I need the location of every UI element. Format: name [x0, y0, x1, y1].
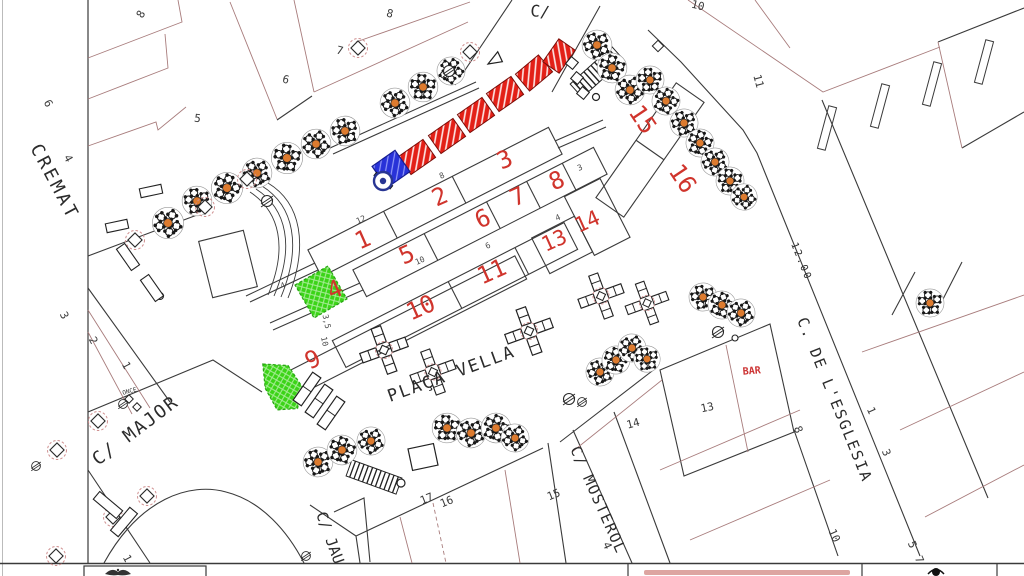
red-stall: [486, 76, 523, 111]
parcel-number: 15: [545, 486, 562, 503]
dimension-label: 10: [319, 336, 330, 347]
parcel-number: 4: [61, 152, 76, 164]
wheel-icon: [373, 172, 393, 190]
dimension-label: 12: [355, 214, 368, 226]
cross-tables-icon: [572, 267, 630, 325]
dimension-label: 3,5: [321, 313, 333, 329]
street-label-major: C/ MAJOR: [88, 391, 183, 470]
street-furniture: [31, 39, 993, 566]
parcel-number: 13: [699, 400, 715, 415]
footer-strip: [84, 564, 997, 576]
parcel-number: 8: [385, 6, 395, 20]
cross-tables-icon: [619, 275, 674, 330]
plaza-label: PLAÇA VELLA: [385, 342, 518, 407]
parking-stall: [974, 40, 993, 85]
tree-icon: [126, 231, 145, 250]
manhole-icon: [301, 552, 311, 561]
zone-number: 3: [492, 144, 517, 175]
parcel-number: 10: [690, 0, 706, 14]
bar-label: BAR: [742, 365, 762, 378]
parking-stall: [922, 62, 941, 107]
dimension-label: 8: [438, 171, 446, 181]
red-stalls: [398, 39, 575, 175]
tree-icon: [461, 43, 480, 62]
dimension-label: 3: [576, 163, 584, 173]
stamp-box: [84, 566, 206, 576]
street-label-esglesia: C. DE L'ESGLESIA: [793, 315, 876, 485]
parking-stall: [870, 84, 889, 129]
parcel-number: 17: [418, 490, 435, 507]
planter: [140, 274, 163, 301]
site-plan-canvas: 1 2 3 4 5 6 7 8 9 10 11 13 14 15 16 8 6 …: [0, 0, 1024, 576]
tree-icon: [89, 412, 108, 431]
tree-icon: [349, 39, 368, 58]
street-width-dimension: 12.00: [788, 241, 813, 282]
street-label-cremat: CREMAT: [26, 140, 84, 223]
parcel-number: 11: [750, 73, 766, 89]
title-text-blur: [644, 570, 850, 575]
zone-number: 9: [300, 344, 325, 375]
table-cluster-icon: [150, 205, 186, 241]
manhole-icon: [577, 398, 587, 407]
manhole-icon: [31, 462, 41, 471]
table-cluster-icon: [910, 283, 950, 323]
red-stall: [457, 97, 494, 132]
manhole-icon: [712, 327, 724, 339]
manhole-icon: [563, 394, 575, 406]
dimension-label: 6: [484, 241, 492, 251]
cross-tables-icon: [353, 319, 415, 381]
planter: [105, 219, 128, 232]
table-cluster-icon: [354, 424, 388, 458]
dimension-label: 10: [414, 255, 427, 267]
tree-icon: [47, 547, 66, 566]
parcel-number: 8: [134, 8, 149, 20]
parcel-number: 6: [281, 72, 291, 86]
parcel-number: 14: [625, 416, 642, 432]
street-label-top: C/: [530, 1, 551, 22]
parcel-number: 10: [826, 527, 843, 544]
kiosk-building: [199, 230, 258, 297]
zone-number: 16: [663, 159, 702, 199]
stairs-bottom: [346, 460, 402, 494]
parcel-number: 7: [335, 43, 345, 57]
tree-icon: [48, 441, 67, 460]
parcel-number: 1: [864, 405, 879, 416]
zone-number: 6: [470, 203, 495, 234]
red-stall: [428, 118, 465, 153]
green-zone: [259, 356, 307, 416]
parcel-number: 3: [879, 447, 894, 458]
manhole-icon: [261, 196, 273, 208]
steps-fan: [250, 183, 300, 298]
zone-number: 1: [350, 224, 375, 255]
zone-number: 14: [571, 205, 604, 237]
zone-number: 7: [505, 181, 530, 212]
parcel-number: 1: [120, 552, 135, 564]
parcel-number: 5: [193, 112, 201, 126]
table-cluster-icon: [238, 154, 276, 192]
platform-square: [408, 444, 438, 471]
street-label-jaume: C/ JAU: [312, 509, 347, 566]
tree-icon: [138, 487, 157, 506]
street-label-mosterol: C/ MOSTEROL: [566, 443, 630, 556]
zone-number: 5: [394, 239, 419, 270]
dimension-label: 4: [554, 213, 562, 223]
planter: [116, 243, 139, 270]
table-cluster-icon: [377, 85, 413, 121]
table-cluster-icon: [300, 128, 332, 160]
planter: [139, 184, 162, 197]
zone-number: 13: [538, 224, 571, 256]
zone-number: 10: [402, 289, 440, 326]
flag-icon: [485, 52, 502, 68]
parcel-number: 6: [41, 97, 56, 109]
zone-number: 11: [473, 253, 511, 290]
parcel-number: 3: [57, 309, 72, 321]
site-plan-drawing: 1 2 3 4 5 6 7 8 9 10 11 13 14 15 16 8 6 …: [0, 0, 1024, 576]
manhole-icon: [443, 66, 455, 78]
footer-logo-icon: [928, 568, 944, 576]
zone-number: 2: [427, 181, 452, 212]
